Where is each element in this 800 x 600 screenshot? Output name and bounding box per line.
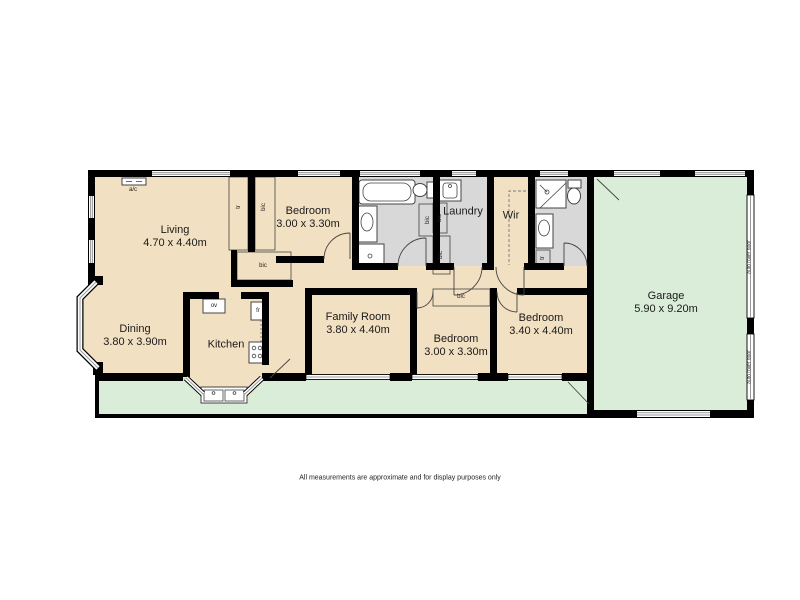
room-label-laundry: Laundry	[443, 206, 483, 219]
room-dims: 3.80 x 4.40m	[326, 324, 391, 337]
ac-label: a/c	[129, 187, 137, 193]
room-label-bedroom-top: Bedroom 3.00 x 3.30m	[276, 205, 340, 231]
room-dims: 3.00 x 3.30m	[276, 218, 340, 231]
room-name: Garage	[634, 290, 698, 303]
laundry-bic-label-1: bic	[437, 214, 443, 222]
ensuite-vanity	[536, 214, 553, 248]
room-name: Bedroom	[509, 312, 573, 325]
room-label-dining: Dining 3.80 x 3.90m	[103, 323, 167, 349]
laundry-bic-label-2: bic	[438, 251, 444, 259]
hall-bic-label: bic	[259, 263, 267, 269]
corner-shower	[536, 180, 566, 208]
laundry-trough	[439, 180, 461, 201]
room-name: Family Room	[326, 311, 391, 324]
kitchen-sink-bench	[201, 387, 247, 403]
roller-door-label-2: auto roller door	[748, 350, 753, 384]
air-conditioner	[122, 178, 146, 185]
toilet	[413, 182, 436, 198]
bathroom-bic-label: bic	[425, 216, 431, 224]
floorplan-image: Living 4.70 x 4.40m Bedroom 3.00 x 3.30m…	[0, 0, 800, 600]
closet-bic-label: bic	[261, 203, 267, 211]
room-label-wir: Wir	[503, 210, 520, 223]
room-label-living: Living 4.70 x 4.40m	[143, 224, 207, 250]
room-name: Dining	[103, 323, 167, 336]
room-dims: 3.80 x 3.90m	[103, 336, 167, 349]
room-label-garage: Garage 5.90 x 9.20m	[634, 290, 698, 316]
room-label-kitchen: Kitchen	[208, 339, 245, 352]
disclaimer-text: All measurements are approximate and for…	[299, 472, 501, 485]
room-label-family-room: Family Room 3.80 x 4.40m	[326, 311, 391, 337]
room-dims: 3.40 x 4.40m	[509, 325, 573, 338]
ensuite-tr-label: tr	[540, 256, 546, 260]
room-label-bedroom-right: Bedroom 3.40 x 4.40m	[509, 312, 573, 338]
room-name: Bedroom	[276, 205, 340, 218]
vanity-basin	[357, 206, 377, 242]
fridge-label: fr	[256, 308, 260, 314]
room-dims: 4.70 x 4.40m	[143, 237, 207, 250]
closet-tr-label: tr	[236, 205, 242, 209]
oven-label: ov	[211, 303, 217, 309]
bathtub	[359, 180, 415, 204]
room-name: Living	[143, 224, 207, 237]
room-dims: 5.90 x 9.20m	[634, 303, 698, 316]
verandah-floor	[97, 376, 590, 416]
room-name: Laundry	[443, 206, 483, 218]
roller-door-label-1: auto roller door	[748, 240, 753, 274]
room-label-bedroom-mid: Bedroom 3.00 x 3.30m	[424, 333, 488, 359]
room-dims: 3.00 x 3.30m	[424, 346, 488, 359]
room-name: Kitchen	[208, 339, 245, 351]
windows-bottom	[306, 375, 562, 380]
ensuite-toilet	[568, 180, 582, 204]
bedroom-bic-label: bic	[457, 294, 465, 300]
room-name: Bedroom	[424, 333, 488, 346]
room-name: Wir	[503, 210, 520, 222]
garage-rear-window	[637, 411, 710, 417]
